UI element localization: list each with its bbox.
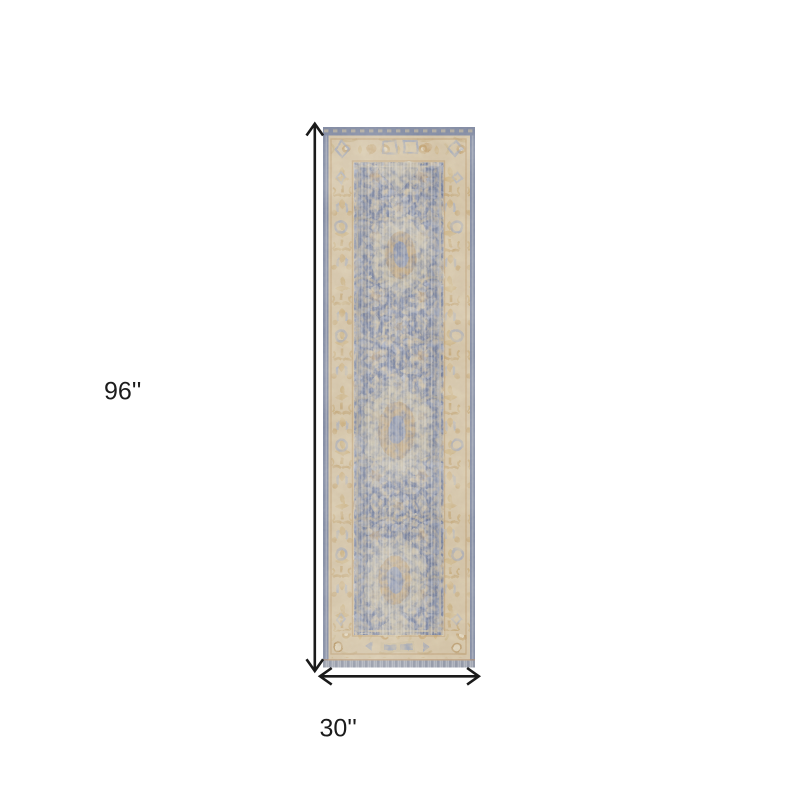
svg-text:30'': 30'' xyxy=(320,715,357,743)
svg-text:96'': 96'' xyxy=(104,378,141,406)
